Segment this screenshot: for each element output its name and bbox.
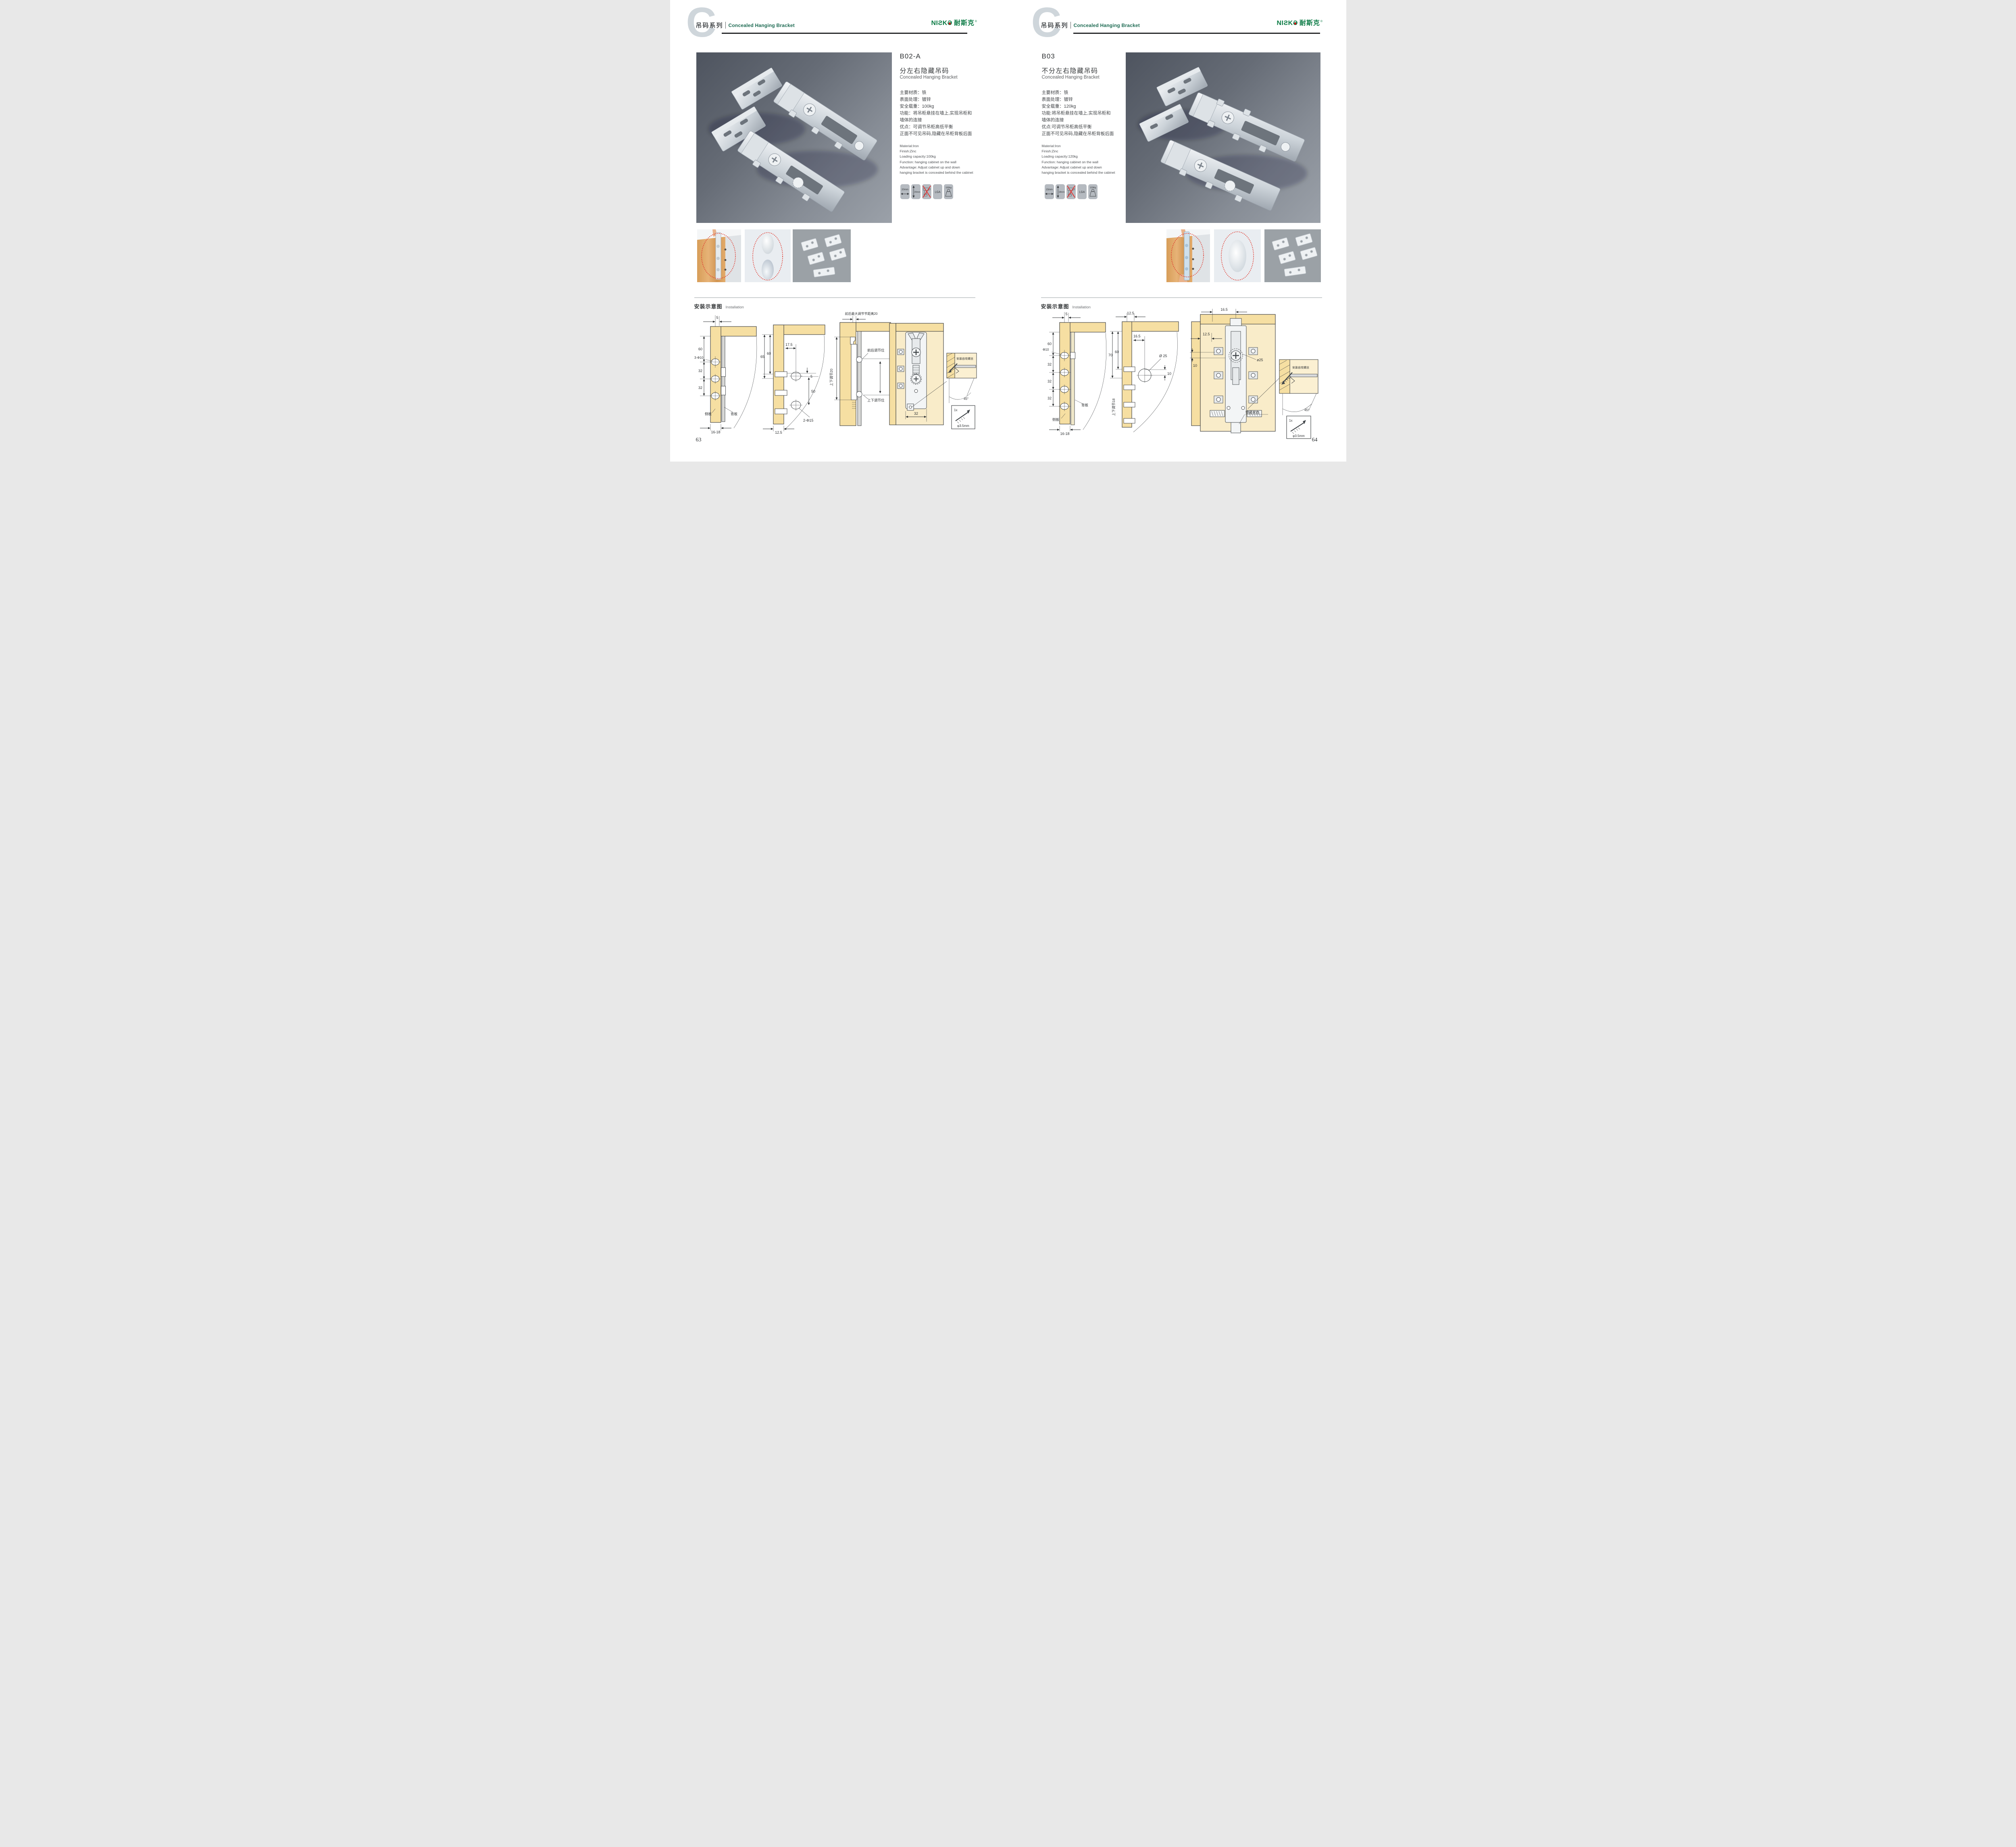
dim-17-5: 17.5	[785, 343, 793, 347]
registered-mark: ®	[975, 20, 977, 23]
label-45-degrees: 45°	[964, 397, 968, 401]
screw-qty: 1x	[1289, 419, 1292, 422]
height-value: 20mm	[914, 191, 920, 193]
series-title-cn: 吊码系列	[1041, 21, 1068, 29]
diagram-b02a-adjustment: 前后最大调节节距离20 上下调节20 前后调节位 上下调节位	[829, 310, 893, 436]
dim-60: 60	[698, 347, 702, 351]
thumb-installed-on-wood	[697, 229, 741, 282]
installation-title-left: 安装示意图 Installation	[694, 302, 744, 310]
spec-line: 安全载重：100kg	[900, 103, 987, 110]
diagram-b02a-drilling-positions: 65 60 17.5 5 50 2-Φ15 12.5	[760, 313, 827, 436]
diagram-b02a-bracket-mounted: 32 安装自攻螺丝 45° 1x	[888, 318, 977, 437]
brand-logo: NIƧKƏ 耐斯克 ®	[931, 20, 977, 27]
product-code-b03: B03	[1042, 52, 1055, 60]
dim-60: 60	[1047, 342, 1051, 346]
diagram-b03-drilling-positions: 12.5 16.5 70 60 Ø 25 10 上下调节18	[1108, 310, 1180, 437]
height-icon: 18mm	[1056, 184, 1065, 199]
spec-line: Material:Iron	[900, 144, 987, 149]
series-title-en: Concealed Hanging Bracket	[1074, 23, 1140, 28]
brand-logo-text: NIƧK	[1277, 20, 1293, 27]
section-divider	[694, 297, 975, 298]
diagram-b02a-side-section: 5 60 32 32 3-Φ10 侧板 背板 16-18	[694, 313, 758, 436]
dim-32: 32	[698, 386, 702, 390]
label-side-panel: 侧板	[705, 412, 712, 416]
diagram-b03-side-section: 5 60 32 32 32 Φ10 背板 侧板 16-18	[1041, 310, 1108, 437]
load-value: 100kg	[946, 187, 952, 189]
screw-spec-box: 1x φ3.5mm	[1287, 416, 1311, 439]
thumb-wall-plates-set	[1264, 229, 1321, 282]
load-value: 120Kg	[1089, 187, 1096, 189]
spec-line: Material:Iron	[1042, 144, 1127, 149]
installation-title-cn: 安装示意图	[1041, 302, 1069, 310]
series-title-cn: 吊码系列	[696, 21, 723, 29]
spec-line: Loading capacity:100kg	[900, 154, 987, 159]
feature-icons-b02a: 20mm 20mm LGA	[900, 184, 953, 199]
header-rule	[1073, 33, 1320, 34]
hole-callout: ø25	[1257, 358, 1263, 362]
label-back-panel: 背板	[731, 412, 738, 416]
dim-5: 5	[1065, 312, 1067, 316]
spec-line: 优点:可调节吊柜高低平衡	[1042, 124, 1127, 131]
screw-diameter: φ3.5mm	[1293, 434, 1305, 438]
brand-logo-cn: 耐斯克	[954, 20, 975, 27]
spec-line: hanging bracket is concealed behind the …	[1042, 170, 1127, 175]
dim-16-5: 16.5	[1220, 308, 1228, 312]
diagram-b03-bracket-mounted: 16.5 12.5 10 ø25 锁紧状态 安装自攻	[1188, 307, 1321, 442]
dim-5: 5	[716, 316, 718, 320]
dim-65: 65	[760, 355, 764, 359]
product-specs-en: Material:Iron Finish:Zinc Loading capaci…	[900, 144, 987, 175]
hole-callout: 2-Φ15	[803, 418, 813, 422]
spec-line: 表面处理：镀锌	[1042, 96, 1127, 103]
spec-line: 功能：将吊柜悬挂在墙上,实现吊柜和	[900, 110, 987, 117]
feature-icons-b03: 15mm 18mm LGA	[1045, 184, 1098, 199]
installation-title-en: Installation	[1073, 305, 1091, 310]
spec-line: 正面不可见吊码,隐藏在吊柜背板后面	[900, 131, 987, 137]
dim-50: 50	[811, 389, 815, 393]
header-divider	[725, 22, 726, 29]
lga-label: LGA	[1079, 191, 1085, 194]
thumb-concealed-front-view	[745, 229, 791, 282]
label-up-down-adjust: 上下调节20	[829, 368, 833, 386]
spec-line: Function: hanging cabinet on the wall	[1042, 160, 1127, 165]
width-value: 15mm	[1046, 189, 1053, 191]
label-up-down-position: 上下调节位	[867, 398, 885, 402]
installation-title-right: 安装示意图 Installation	[1041, 302, 1091, 310]
spec-line: Finish:Zinc	[900, 149, 987, 154]
height-value: 18mm	[1058, 191, 1064, 193]
spec-line: 主要材质：铁	[1042, 89, 1127, 96]
registered-mark: ®	[1320, 20, 1322, 23]
spec-line: 主要材质：铁	[900, 89, 987, 96]
spec-line: 表面处理：镀锌	[900, 96, 987, 103]
brand-logo-cn: 耐斯克	[1300, 20, 1320, 27]
hole-callout: Ø 25	[1159, 354, 1167, 358]
page-header-left: 吊码系列 Concealed Hanging Bracket	[696, 21, 795, 29]
dim-32: 32	[1047, 379, 1051, 383]
lga-certified-icon: LGA	[1077, 184, 1087, 199]
spec-line: Advantage: Adjust cabinet up and down	[900, 165, 987, 170]
label-45-degrees: 45°	[1304, 408, 1309, 412]
width-icon: 20mm	[900, 184, 910, 199]
dim-12-5: 12.5	[775, 431, 782, 434]
catalog-spread: C 吊码系列 Concealed Hanging Bracket NIƧKƏ 耐…	[670, 0, 1346, 462]
page-number-right: 64	[1312, 437, 1318, 443]
page-number-left: 63	[696, 437, 702, 443]
spec-line: 安全载重：120kg	[1042, 103, 1127, 110]
dim-16-18: 16-18	[711, 430, 720, 434]
spec-line: Advantage: Adjust cabinet up and down	[1042, 165, 1127, 170]
dim-12-5: 12.5	[1203, 332, 1210, 336]
spec-line: 正面不可见吊码,隐藏在吊柜背板后面	[1042, 131, 1127, 137]
spec-line: 墙体的连接	[900, 117, 987, 124]
brand-logo-o-icon: Ə	[1293, 20, 1298, 27]
load-capacity-icon: 120Kg	[1088, 184, 1098, 199]
width-value: 20mm	[902, 189, 908, 191]
product-name-cn: 分左右隐藏吊码	[900, 65, 950, 75]
no-drill-icon	[1066, 184, 1076, 199]
dim-32: 32	[914, 412, 918, 416]
spec-line: 优点：可调节吊柜高低平衡	[900, 124, 987, 131]
screw-detail-inset: 安装自攻螺丝	[1279, 360, 1318, 393]
dim-32: 32	[1047, 362, 1051, 366]
section-divider	[1041, 297, 1322, 298]
header-divider	[1070, 22, 1071, 29]
header-rule	[722, 33, 967, 34]
load-capacity-icon: 100kg	[944, 184, 953, 199]
dim-16-18: 16-18	[1060, 432, 1069, 435]
screw-detail-inset: 安装自攻螺丝	[947, 353, 977, 378]
installation-title-cn: 安装示意图	[694, 302, 723, 310]
product-code-b02a: B02-A	[900, 52, 921, 60]
spec-line: hanging bracket is concealed behind the …	[900, 170, 987, 175]
width-icon: 15mm	[1045, 184, 1054, 199]
label-self-tapping-screw: 安装自攻螺丝	[956, 357, 973, 360]
label-self-tapping-screw: 安装自攻螺丝	[1292, 366, 1309, 369]
height-icon: 20mm	[911, 184, 921, 199]
thumb-wall-plates-set	[793, 229, 851, 282]
thumb-concealed-front-view	[1214, 229, 1261, 282]
dim-5: 5	[810, 374, 812, 379]
brand-logo: NIƧKƏ 耐斯克 ®	[1277, 20, 1323, 27]
dim-60: 60	[1115, 350, 1119, 354]
dim-32: 32	[1047, 396, 1051, 400]
dim-12-5: 12.5	[1127, 311, 1134, 315]
page-header-right: 吊码系列 Concealed Hanging Bracket	[1041, 21, 1140, 29]
label-side-panel: 侧板	[1052, 418, 1060, 422]
label-up-down-adjust: 上下调节18	[1112, 398, 1116, 416]
product-name-en: Concealed Hanging Bracket	[900, 75, 958, 80]
product-specs-cn: 主要材质：铁 表面处理：镀锌 安全载重：120kg 功能:将吊柜悬挂在墙上,实现…	[1042, 89, 1127, 137]
product-photo-b02a-illustration	[696, 52, 892, 223]
dim-32: 32	[698, 369, 702, 373]
brand-logo-o-icon: Ə	[948, 20, 952, 27]
product-name-en: Concealed Hanging Bracket	[1042, 75, 1100, 80]
series-title-en: Concealed Hanging Bracket	[729, 23, 795, 28]
product-specs-en: Material:Iron Finish:Zinc Loading capaci…	[1042, 144, 1127, 175]
lga-label: LGA	[935, 191, 940, 194]
spec-line: Function: hanging cabinet on the wall	[900, 160, 987, 165]
product-specs-cn: 主要材质：铁 表面处理：镀锌 安全载重：100kg 功能：将吊柜悬挂在墙上,实现…	[900, 89, 987, 137]
hole-callout: 3-Φ10	[694, 356, 704, 360]
no-drill-icon	[922, 184, 931, 199]
dim-60: 60	[767, 352, 771, 356]
spec-line: Loading capacity:120kg	[1042, 154, 1127, 159]
thumb-installed-on-wood	[1166, 229, 1210, 282]
label-locked-state: 锁紧状态	[1245, 410, 1260, 414]
screw-spec-box: 1x φ3.5mm	[952, 406, 975, 429]
screw-diameter: φ3.5mm	[957, 424, 969, 428]
screw-qty: 1x	[954, 408, 957, 412]
product-name-cn: 不分左右隐藏吊码	[1042, 65, 1098, 75]
lga-certified-icon: LGA	[933, 184, 942, 199]
dim-10: 10	[1193, 364, 1197, 368]
wall-plate-1	[731, 68, 782, 110]
hole-callout: Φ10	[1043, 348, 1049, 352]
label-front-back-position: 前后调节位	[867, 348, 885, 352]
spec-line: 墙体的连接	[1042, 117, 1127, 124]
dim-10: 10	[1167, 372, 1171, 376]
dim-70: 70	[1108, 353, 1112, 357]
spec-line: Finish:Zinc	[1042, 149, 1127, 154]
spec-line: 功能:将吊柜悬挂在墙上,实现吊柜和	[1042, 110, 1127, 117]
product-photo-b03	[1126, 52, 1320, 223]
dim-16-5: 16.5	[1133, 334, 1141, 338]
brand-logo-text: NIƧK	[931, 20, 948, 27]
product-photo-b02a	[696, 52, 892, 223]
label-front-back-max-adjust: 前后最大调节节距离20	[845, 312, 877, 316]
installation-title-en: Installation	[726, 305, 744, 310]
